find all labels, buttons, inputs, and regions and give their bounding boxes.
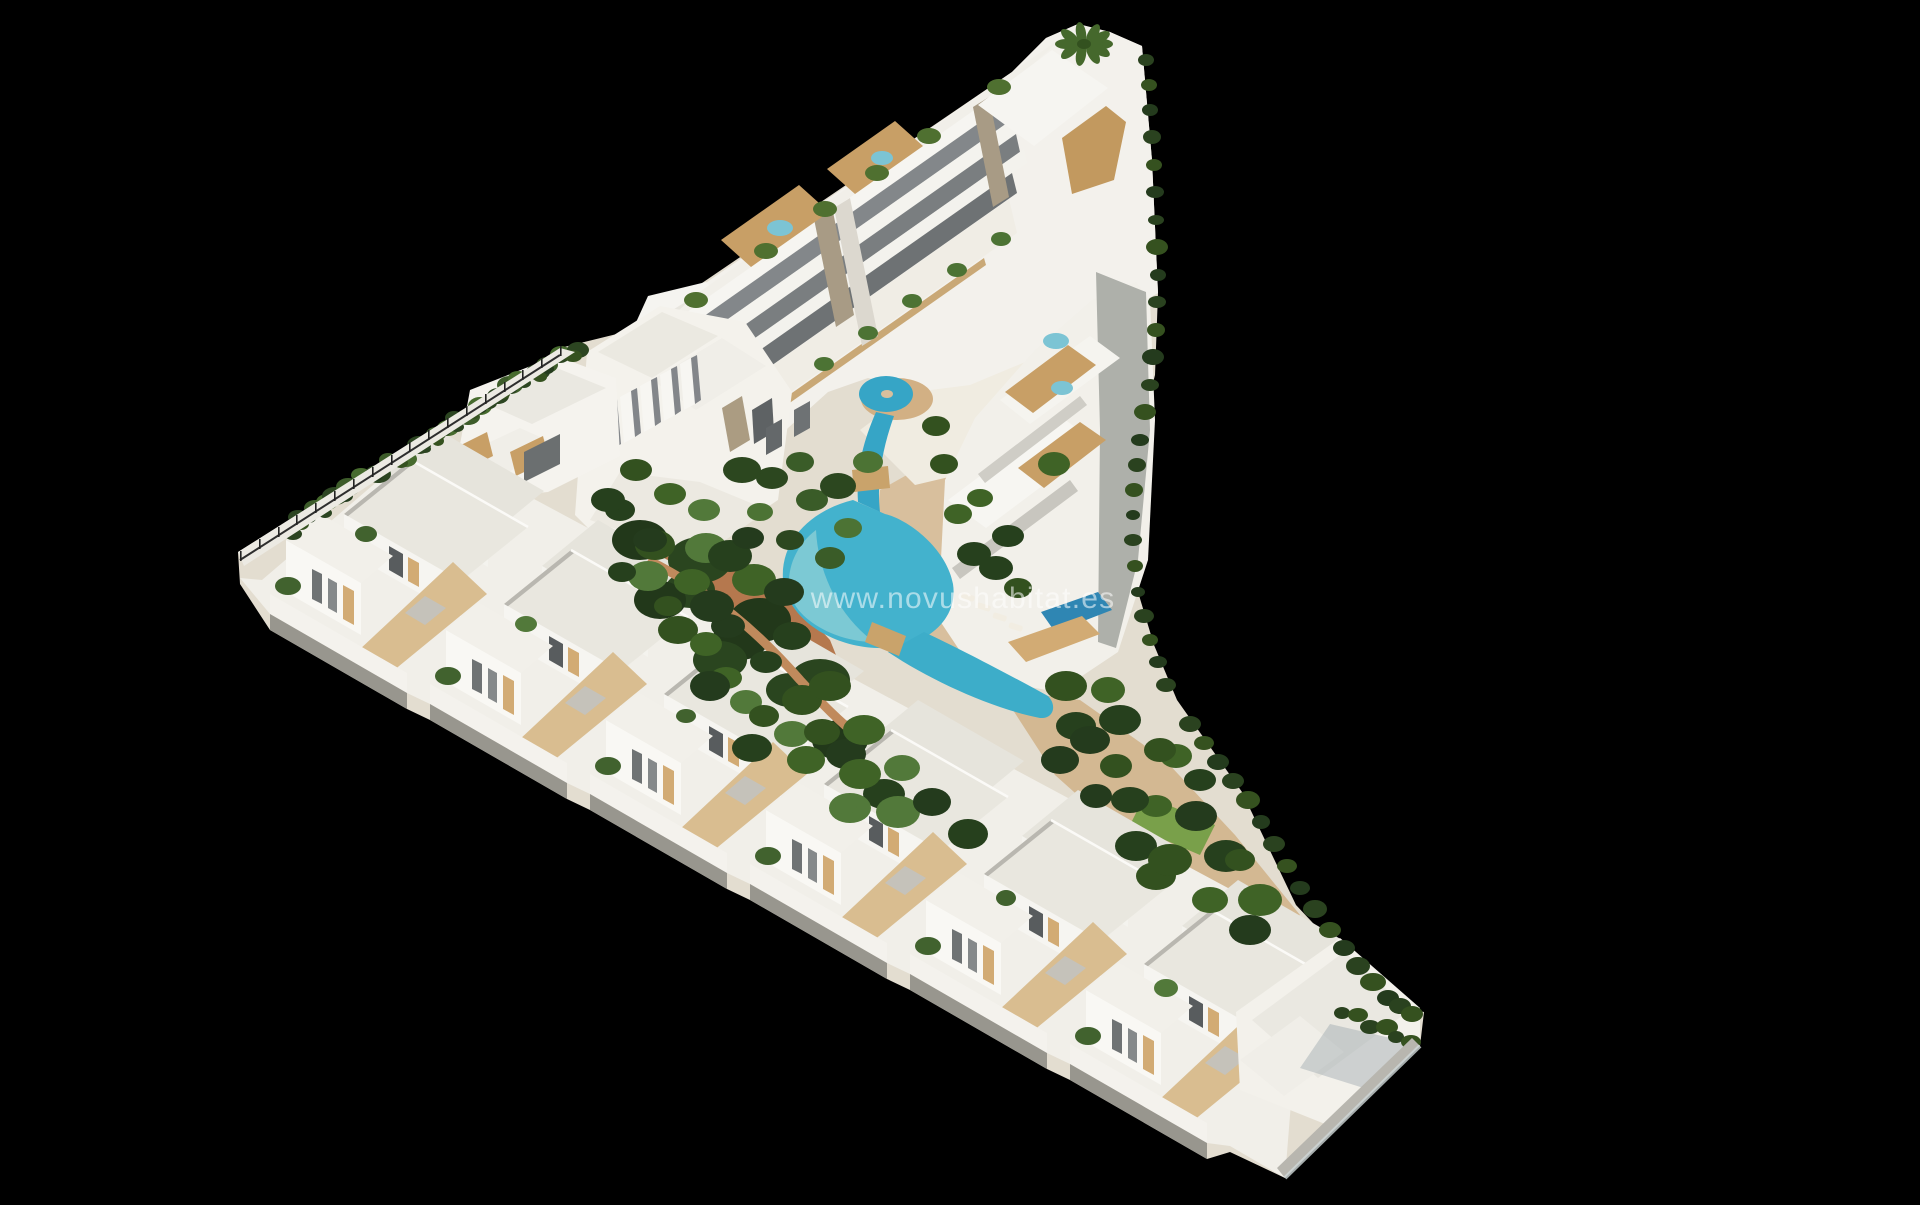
- svg-text:www.novushabitat.es: www.novushabitat.es: [810, 582, 1116, 615]
